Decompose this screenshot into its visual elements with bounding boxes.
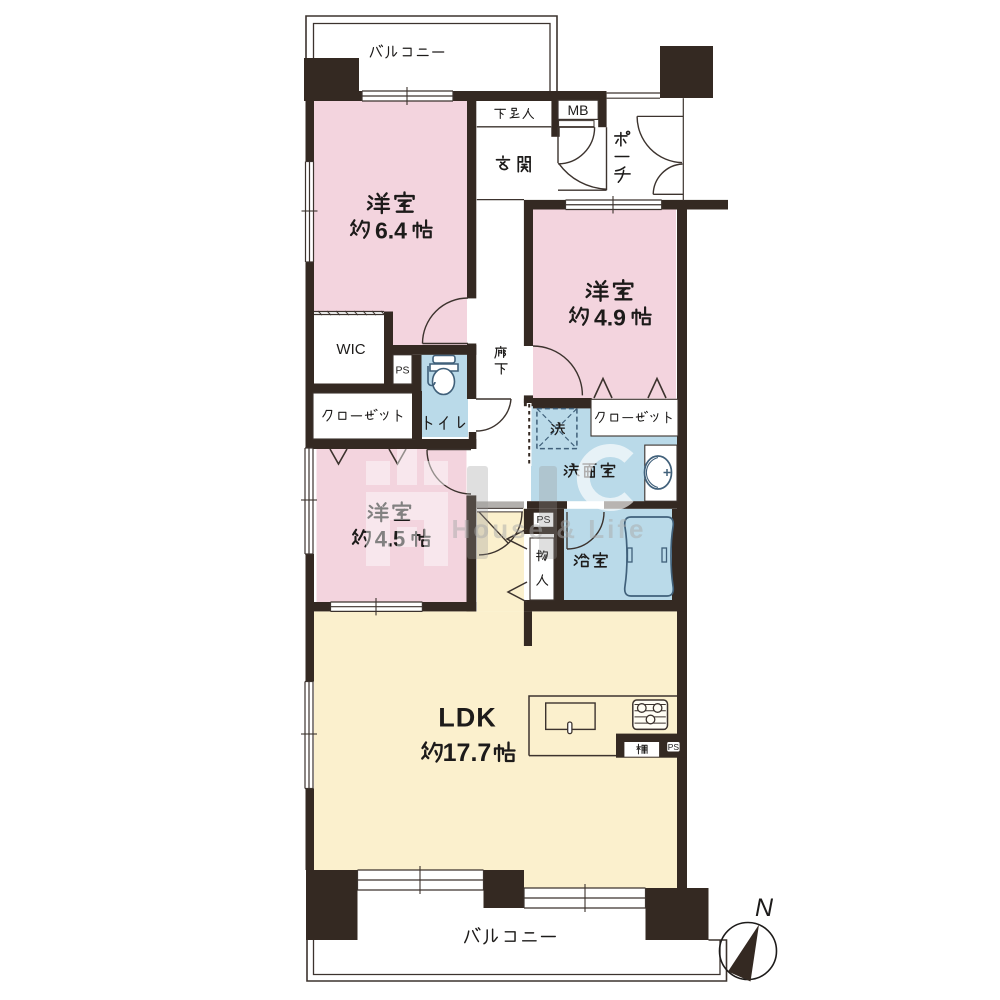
svg-text:6.4: 6.4 xyxy=(375,218,407,244)
svg-text:17.7: 17.7 xyxy=(443,739,492,767)
svg-text:MB: MB xyxy=(568,102,589,118)
svg-text:WIC: WIC xyxy=(336,341,365,358)
svg-text:PS: PS xyxy=(668,742,680,752)
svg-text:4.9: 4.9 xyxy=(594,305,626,331)
svg-text:N: N xyxy=(755,894,774,922)
svg-text:House & Life: House & Life xyxy=(452,514,647,544)
svg-text:LDK: LDK xyxy=(438,703,497,733)
svg-text:PS: PS xyxy=(395,365,409,377)
